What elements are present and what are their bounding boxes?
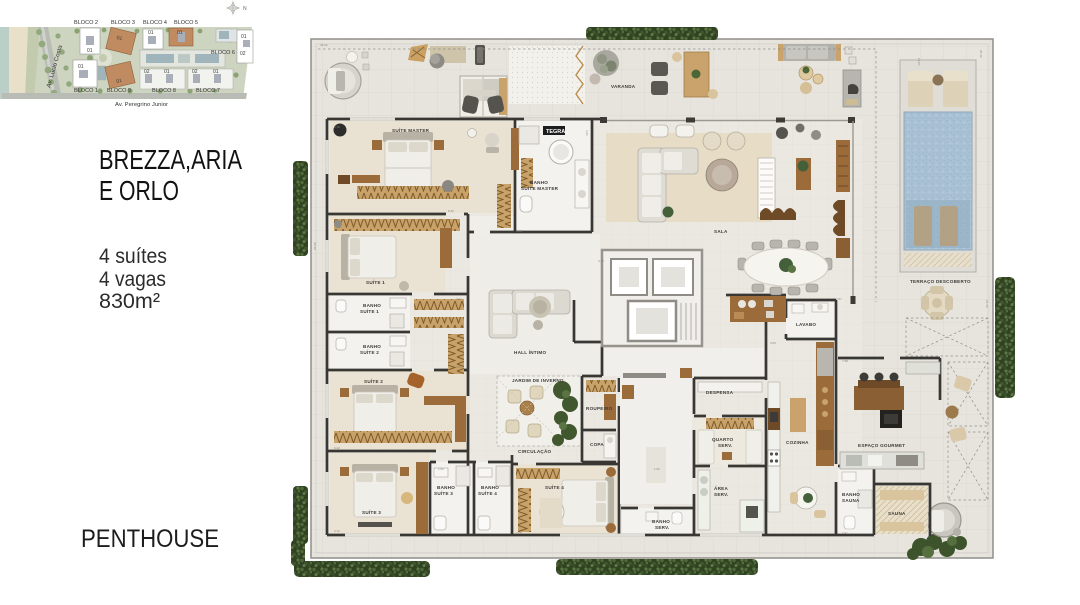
svg-text:BANHO: BANHO bbox=[842, 492, 860, 497]
svg-text:SALA: SALA bbox=[714, 229, 728, 234]
svg-text:BANHO: BANHO bbox=[363, 303, 381, 308]
svg-text:SUÍTE 4: SUÍTE 4 bbox=[545, 483, 564, 490]
svg-text:5.76: 5.76 bbox=[334, 125, 340, 129]
svg-text:BLOCO 5: BLOCO 5 bbox=[174, 20, 198, 26]
svg-text:830m²: 830m² bbox=[99, 290, 160, 313]
svg-text:BANHO: BANHO bbox=[437, 485, 455, 490]
svg-text:SUÍTE 3: SUÍTE 3 bbox=[434, 489, 453, 496]
svg-text:SERV.: SERV. bbox=[655, 525, 670, 530]
svg-text:BANHO: BANHO bbox=[530, 180, 548, 185]
svg-text:TEGRA: TEGRA bbox=[546, 129, 565, 135]
svg-text:SERV.: SERV. bbox=[718, 443, 733, 448]
svg-text:01: 01 bbox=[87, 48, 93, 54]
svg-text:QUARTO: QUARTO bbox=[712, 437, 733, 442]
svg-text:COPA: COPA bbox=[590, 442, 604, 447]
svg-text:4.40: 4.40 bbox=[516, 229, 522, 233]
svg-text:SUÍTE 2: SUÍTE 2 bbox=[364, 377, 383, 384]
svg-text:4 suítes: 4 suítes bbox=[99, 245, 167, 268]
svg-text:1.52: 1.52 bbox=[654, 467, 660, 471]
svg-text:BREZZA,ARIA: BREZZA,ARIA bbox=[99, 144, 242, 175]
svg-text:SUÍTE 3: SUÍTE 3 bbox=[362, 508, 381, 515]
svg-text:BLOCO 9: BLOCO 9 bbox=[107, 88, 131, 94]
svg-text:3.21: 3.21 bbox=[585, 130, 589, 136]
svg-text:BLOCO 6: BLOCO 6 bbox=[211, 50, 235, 56]
svg-text:25.80: 25.80 bbox=[313, 242, 317, 250]
svg-text:01: 01 bbox=[78, 64, 84, 70]
svg-text:BLOCO 2: BLOCO 2 bbox=[74, 20, 98, 26]
svg-text:ESPAÇO GOURMET: ESPAÇO GOURMET bbox=[858, 443, 905, 448]
svg-text:BANHO: BANHO bbox=[652, 519, 670, 524]
svg-text:BANHO: BANHO bbox=[363, 344, 381, 349]
svg-text:4 vagas: 4 vagas bbox=[99, 268, 166, 291]
svg-text:4.53: 4.53 bbox=[770, 341, 776, 345]
svg-text:1.52: 1.52 bbox=[438, 467, 444, 471]
svg-text:6.42: 6.42 bbox=[334, 446, 340, 450]
svg-text:10.87: 10.87 bbox=[917, 58, 921, 66]
svg-text:PENTHOUSE: PENTHOUSE bbox=[81, 525, 219, 553]
svg-text:3.08: 3.08 bbox=[516, 531, 522, 535]
svg-text:7.98: 7.98 bbox=[842, 359, 848, 363]
svg-text:HALL ÍNTIMO: HALL ÍNTIMO bbox=[514, 348, 546, 355]
svg-text:21.40: 21.40 bbox=[985, 300, 989, 308]
svg-text:ROUPEIRO: ROUPEIRO bbox=[586, 406, 613, 411]
svg-text:3.21: 3.21 bbox=[456, 297, 462, 301]
svg-text:DESPENSA: DESPENSA bbox=[706, 390, 734, 395]
svg-text:2.57: 2.57 bbox=[836, 297, 842, 301]
svg-text:TERRAÇO DESCOBERTO: TERRAÇO DESCOBERTO bbox=[910, 279, 971, 284]
svg-text:BLOCO 3: BLOCO 3 bbox=[111, 20, 135, 26]
svg-text:02: 02 bbox=[144, 69, 150, 75]
svg-text:SUÍTE MASTER: SUÍTE MASTER bbox=[521, 184, 559, 191]
svg-text:BANHO: BANHO bbox=[481, 485, 499, 490]
svg-text:BLOCO 4: BLOCO 4 bbox=[143, 20, 167, 26]
svg-text:Av. Peregrino Junior: Av. Peregrino Junior bbox=[115, 102, 168, 108]
svg-text:LAVABO: LAVABO bbox=[796, 322, 816, 327]
svg-text:8.42: 8.42 bbox=[448, 209, 454, 213]
svg-text:25.40: 25.40 bbox=[979, 50, 983, 58]
svg-text:COZINHA: COZINHA bbox=[786, 440, 809, 445]
svg-text:01: 01 bbox=[241, 34, 247, 40]
svg-text:SUÍTE 1: SUÍTE 1 bbox=[360, 307, 379, 314]
svg-text:ÁREA: ÁREA bbox=[714, 485, 728, 491]
svg-text:SUÍTE 1: SUÍTE 1 bbox=[366, 278, 385, 285]
svg-text:02: 02 bbox=[240, 51, 246, 57]
svg-text:SAUNA: SAUNA bbox=[888, 511, 906, 516]
svg-text:3.41: 3.41 bbox=[842, 531, 848, 535]
svg-text:BLOCO 7: BLOCO 7 bbox=[196, 88, 220, 94]
svg-text:SUÍTE MASTER: SUÍTE MASTER bbox=[392, 126, 430, 133]
svg-text:01: 01 bbox=[213, 69, 219, 75]
svg-text:JARDIM DE INVERNO: JARDIM DE INVERNO bbox=[512, 378, 564, 383]
svg-text:SAUNA: SAUNA bbox=[842, 498, 860, 503]
svg-text:SERV.: SERV. bbox=[714, 492, 729, 497]
svg-text:02: 02 bbox=[192, 69, 198, 75]
svg-text:BLOCO 8: BLOCO 8 bbox=[152, 88, 176, 94]
svg-text:BLOCO 1: BLOCO 1 bbox=[74, 88, 98, 94]
svg-text:SUÍTE 2: SUÍTE 2 bbox=[360, 348, 379, 355]
svg-text:01: 01 bbox=[164, 69, 170, 75]
svg-text:01: 01 bbox=[177, 30, 183, 36]
svg-text:4.48: 4.48 bbox=[598, 259, 604, 263]
svg-text:SUÍTE 4: SUÍTE 4 bbox=[478, 489, 497, 496]
svg-text:3.21: 3.21 bbox=[456, 365, 462, 369]
svg-text:N: N bbox=[243, 6, 247, 12]
svg-text:E ORLO: E ORLO bbox=[99, 175, 179, 206]
svg-text:33.94: 33.94 bbox=[320, 43, 328, 47]
svg-text:4.72: 4.72 bbox=[334, 529, 340, 533]
svg-text:01: 01 bbox=[148, 30, 154, 36]
svg-text:VARANDA: VARANDA bbox=[611, 84, 636, 89]
svg-text:CIRCULAÇÃO: CIRCULAÇÃO bbox=[518, 448, 552, 454]
